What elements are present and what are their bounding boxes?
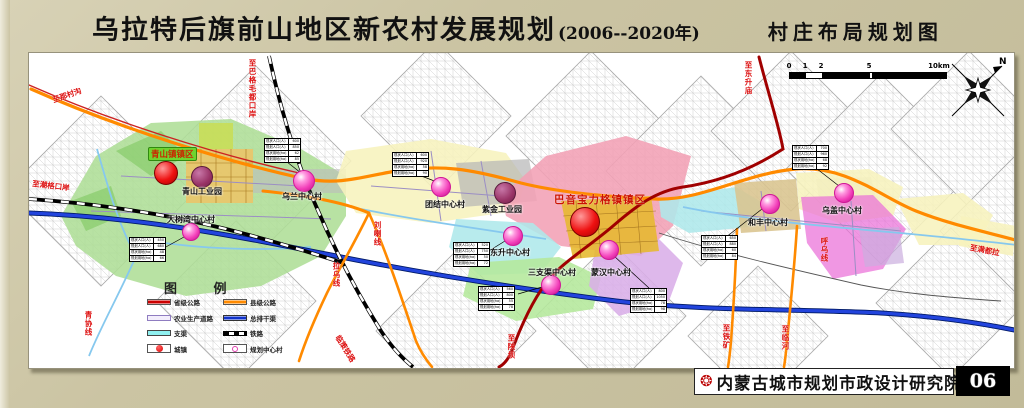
legend-label: 县级公路 [250,297,276,307]
map-layer: 乌兰中心村大树湾中心村团结中心村东升中心村三支渠中心村蒙汉中心村和丰中心村乌盖中… [28,52,1015,369]
legend-item-road-provincial: 省级公路 [147,297,223,307]
scale-tick: 5 [867,62,872,70]
town-label: 巴音宝力格镇镇区 [554,192,646,207]
legend-item-town: 城镇 [147,344,223,354]
central-village-marker [599,240,619,260]
village-info-table: 现状人口(人)800规划人口(人)1050现状用地(ha)78规划用地(ha)9… [630,288,667,313]
page-number: 06 [956,366,1010,396]
legend-item-railway: 铁路 [223,328,311,338]
legend-label: 总排干渠 [250,313,276,323]
north-label: N [999,57,1007,67]
industrial-park-marker [191,166,213,188]
legend-items: 省级公路县级公路农业生产道路总排干渠支渠铁路城镇规划中心村 [147,297,311,354]
town-marker [154,161,178,185]
central-village-symbol [223,344,247,353]
scale-bar-line [789,72,947,79]
title-bar: 乌拉特后旗前山地区新农村发展规划 (2006--2020年) 村庄布局规划图 [0,8,1024,50]
legend-item-farm-road: 农业生产道路 [147,313,223,323]
village-info-table: 现状人口(人)700规划人口(人)960现状用地(ha)68规划用地(ha)92 [792,145,829,170]
village-label: 乌兰中心村 [282,191,322,202]
legend-item-branch-canal: 支渠 [147,328,223,338]
road-destination-label: 至巴格毛都口岸 [247,59,258,119]
legend-label: 铁路 [250,328,263,338]
village-info-table: 现状人口(人)650规划人口(人)880现状用地(ha)60规划用地(ha)84 [701,235,738,260]
village-info-table: 现状人口(人)560规划人口(人)800现状用地(ha)55规划用地(ha)78 [478,286,515,311]
footer-bar: ❂ 内蒙古城市规划市政设计研究院 [694,368,954,395]
sheet-title: 村庄布局规划图 [768,16,943,45]
page-title: 乌拉特后旗前山地区新农村发展规划 [92,9,556,46]
central-village-marker [834,183,854,203]
road-destination-label: 呼乌线 [819,237,830,263]
road-destination-label: 青协线 [83,311,94,337]
legend-label: 省级公路 [174,297,200,307]
industrial-park-marker [494,182,516,204]
town-symbol [147,344,171,353]
legend-label: 城镇 [174,344,187,354]
road-county-symbol [223,299,247,305]
village-label: 蒙汉中心村 [591,267,631,278]
scale-tick: 0 [787,62,792,70]
village-label: 和丰中心村 [748,217,788,228]
industrial-park-label: 紫金工业园 [482,204,522,215]
page-background: 乌拉特后旗前山地区新农村发展规划 (2006--2020年) 村庄布局规划图 [0,0,1024,408]
central-village-marker [431,177,451,197]
legend-title: 图 例 [164,278,243,297]
legend-label: 支渠 [174,328,187,338]
title-period: (2006--2020年) [558,19,700,44]
central-village-marker [182,223,200,241]
main-drain-symbol [223,315,247,321]
village-label: 大树湾中心村 [167,214,215,225]
legend-label: 农业生产道路 [174,313,213,323]
village-info-table: 现状人口(人)600规划人口(人)850现状用地(ha)62规划用地(ha)85 [264,138,301,163]
scale-tick: 1 [803,62,808,70]
legend-label: 规划中心村 [250,344,283,354]
village-label: 东升中心村 [490,247,530,258]
road-provincial-symbol [147,299,171,305]
institute-name: 内蒙古城市规划市政设计研究院 [717,370,962,394]
road-destination-label: 拉乌线 [331,262,342,288]
industrial-park-label: 青山工业园 [182,186,222,197]
town-label: 青山镇镇区 [148,147,197,161]
seal-icon: ❂ [700,374,713,389]
central-village-marker [760,194,780,214]
village-label: 三支渠中心村 [528,267,576,278]
central-village-marker [293,170,315,192]
village-label: 乌盖中心村 [822,205,862,216]
road-destination-label: 至临河 [780,325,791,351]
road-destination-label: 至陕坝 [506,334,517,360]
road-destination-label: 刘喇线 [372,221,383,247]
farm-road-symbol [147,315,171,321]
legend-item-central-village: 规划中心村 [223,344,311,354]
map-panel: 乌兰中心村大树湾中心村团结中心村东升中心村三支渠中心村蒙汉中心村和丰中心村乌盖中… [28,52,1015,369]
town-marker [570,207,600,237]
central-village-marker [541,275,561,295]
village-info-table: 现状人口(人)600规划人口(人)920现状用地(ha)58规划用地(ha)90 [392,152,429,177]
legend-item-main-drain: 总排干渠 [223,313,311,323]
village-label: 团结中心村 [425,199,465,210]
scale-tick: 2 [819,62,824,70]
road-destination-label: 至东升庙 [743,61,754,95]
railway-symbol [223,331,247,336]
central-village-marker [503,226,523,246]
scale-bar: 012510km [789,62,959,82]
legend-item-road-county: 县级公路 [223,297,311,307]
branch-canal-symbol [147,330,171,336]
village-info-table: 现状人口(人)450规划人口(人)680现状用地(ha)48规划用地(ha)66 [129,237,166,262]
village-info-table: 现状人口(人)520规划人口(人)750现状用地(ha)50规划用地(ha)72 [453,242,490,267]
road-destination-label: 至铁矿 [721,324,732,350]
